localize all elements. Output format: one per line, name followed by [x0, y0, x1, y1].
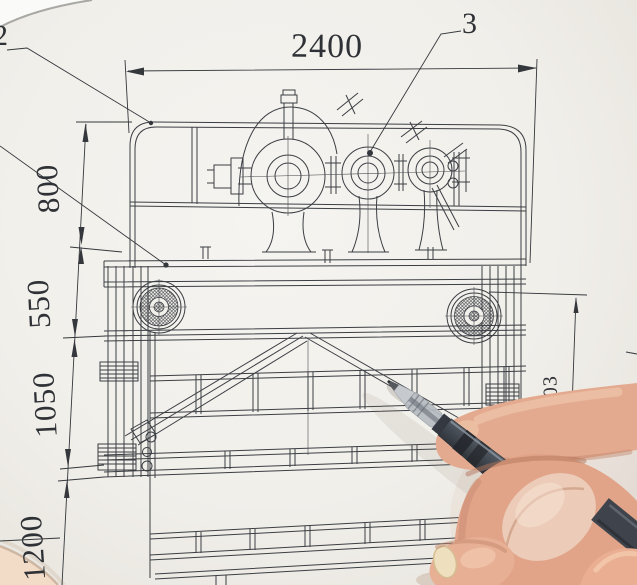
arrow-chain-b2-dn: [72, 339, 78, 357]
arrow-chain-top: [83, 123, 89, 142]
bracket-bolt-2: [448, 178, 458, 188]
gearbox-top-cap: [281, 90, 297, 139]
paper-corner-top-left: [0, 0, 92, 27]
drawing-photo-canvas: 2400 800 550 1050 1200 1403 2 3: [0, 0, 637, 585]
leader-dot-left: [163, 262, 168, 267]
input-shaft-left: [207, 158, 252, 194]
photo-of-technical-drawing: 2400 800 550 1050 1200 1403 2 3: [0, 0, 637, 585]
left-spring-pack-1: [100, 362, 138, 381]
arrow-2400-left: [126, 68, 144, 76]
dim-ext-lines-left: [0, 122, 132, 541]
callout-left-leader: [0, 146, 166, 265]
bearing-wheel-left: [131, 279, 187, 335]
callout-2-leader: [7, 48, 151, 123]
bearing-left-crosshair: [131, 279, 187, 335]
callout-label-3: 3: [462, 7, 478, 40]
machine-drawing: [130, 90, 526, 268]
dim-label-800: 800: [29, 163, 67, 214]
table-wedge-top-left: [0, 0, 92, 27]
gearbox-pedestals: [262, 190, 447, 252]
arrow-1403-top: [574, 297, 579, 313]
right-edge-line: [626, 352, 637, 354]
arrow-chain-b2-up: [72, 319, 78, 337]
arrow-2400-right: [518, 65, 537, 73]
arrow-chain-b3-up: [65, 449, 71, 467]
callout-label-2: 2: [0, 19, 9, 52]
frame-top-rail: [130, 202, 526, 211]
dim-label-550: 550: [20, 278, 58, 329]
left-spring-pack-2: [98, 444, 136, 470]
frame-outline: [130, 122, 526, 268]
dim-label-2400: 2400: [291, 28, 363, 66]
middle-ladder-rails: [150, 366, 526, 418]
brace-anchor-diamond: [131, 420, 156, 443]
dim-label-1050: 1050: [25, 371, 63, 439]
dim-label-1200: 1200: [13, 514, 53, 582]
leader-dot-3: [367, 150, 373, 156]
arrow-chain-b3-dn: [64, 480, 70, 498]
leader-dot-2: [149, 121, 153, 125]
